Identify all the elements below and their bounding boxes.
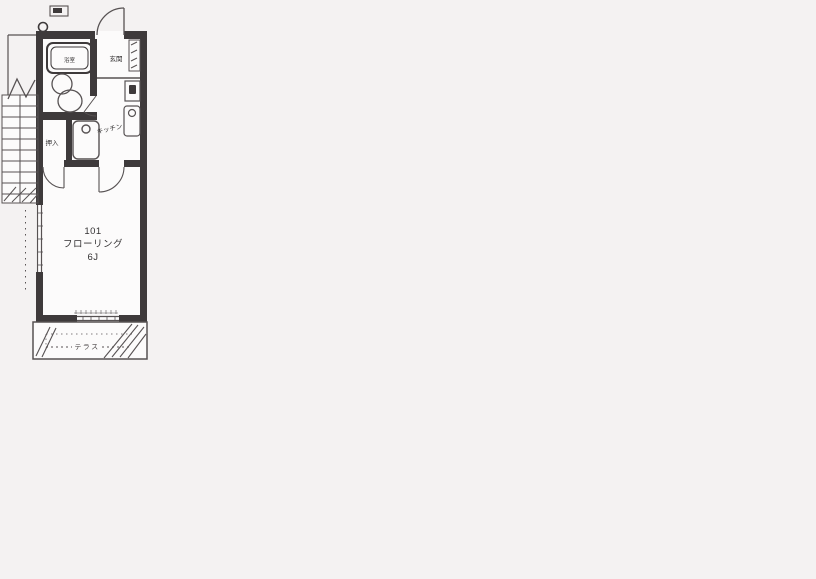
room-number-label: 101: [84, 226, 101, 237]
floor-plan-drawing: 浴室 玄関 押入 キッチン 101 フローリング 6J テラス: [0, 0, 816, 579]
entrance-door-arc: [97, 8, 124, 35]
entrance-label: 玄関: [110, 54, 123, 63]
bath-label: 浴室: [64, 56, 76, 64]
flooring-label: フローリング: [63, 238, 123, 250]
post-circle: [39, 23, 48, 32]
meter-box: [50, 6, 68, 16]
terrace-label: テラス: [74, 343, 99, 351]
scanned-page: 浴室 玄関 押入 キッチン 101 フローリング 6J テラス: [0, 0, 816, 579]
closet-label: 押入: [46, 138, 60, 147]
size-label: 6J: [87, 252, 98, 263]
room-interiors: [2, 31, 147, 359]
